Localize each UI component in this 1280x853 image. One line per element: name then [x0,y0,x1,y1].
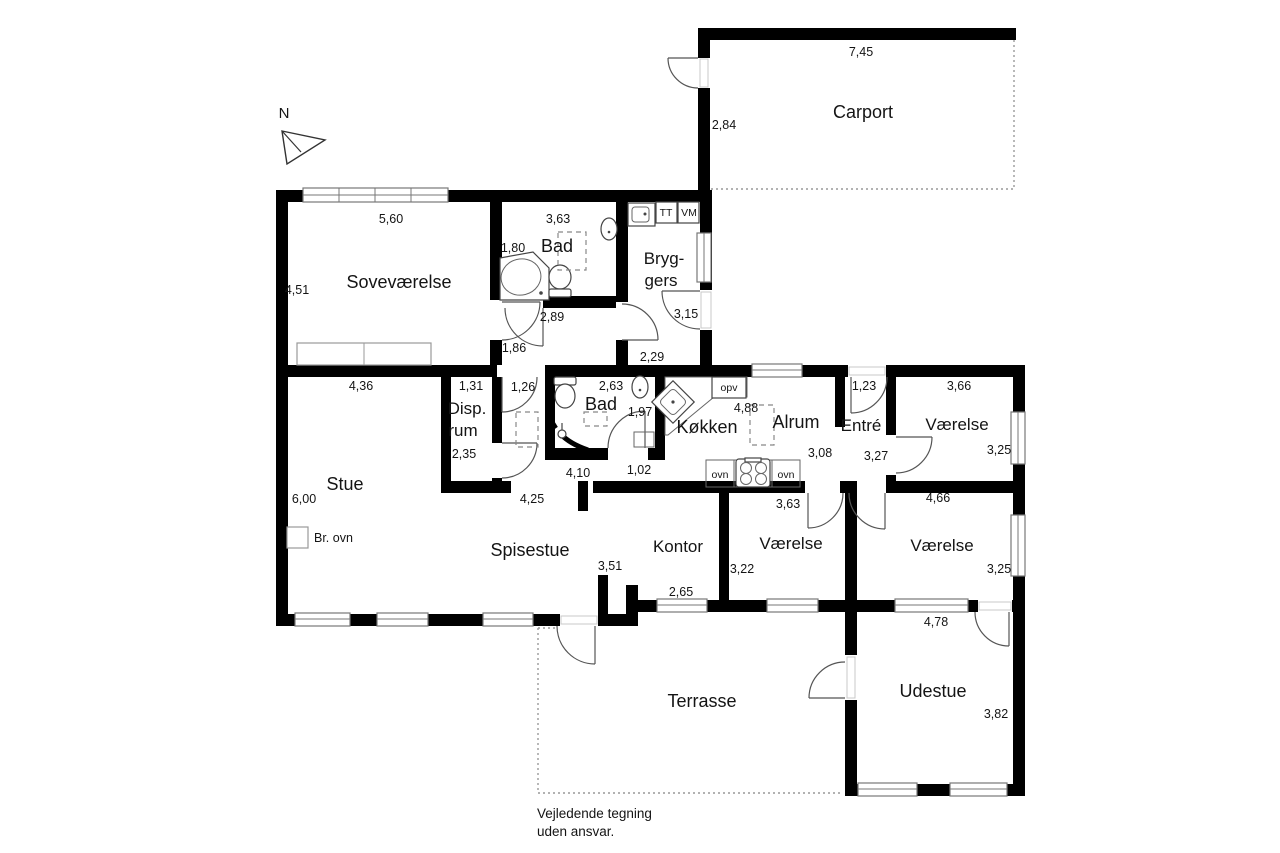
toilet-icon-bad2 [554,377,576,408]
dashed-fixture-bad2 [584,412,607,426]
door-udestue-terrasse [809,662,845,698]
disclaimer: Vejledende tegning uden ansvar. [537,806,652,839]
room-label-udestue: Udestue [899,681,966,701]
room-label-terrasse: Terrasse [667,691,736,711]
dim-passage-width: 1,02 [627,463,651,477]
dim-bryggers-width: 2,29 [640,350,664,364]
door-udestue-vaerelse [975,612,1009,646]
window-vaerelse-mid [767,599,818,612]
shower-base-bad2 [634,432,654,447]
washing-machine-icon: VM [678,202,699,223]
dim-bad1-width: 3,63 [546,212,570,226]
window-vaerelse-se [1011,515,1025,576]
dim-carport-depth: 2,84 [712,118,736,132]
dim-entre-depth: 3,27 [864,449,888,463]
dim-vaerelse-se-bottom: 4,78 [924,615,948,629]
door-disp-rum [502,443,537,478]
dim-hall-bottom-width: 4,10 [566,466,590,480]
floor-plan-page: TT VM opv [0,0,1280,853]
room-label-bryggers-1: Bryg- [644,249,685,268]
disclaimer-line-2: uden ansvar. [537,824,614,839]
dim-bad2-width: 2,63 [599,379,623,393]
wood-stove-label: Br. ovn [314,531,353,545]
room-label-disp-1: Disp. [448,399,487,418]
dim-carport-width: 7,45 [849,45,873,59]
dim-sovevaerelse-depth: 4,51 [285,283,309,297]
window-udestue-bottom-2 [950,783,1007,796]
dim-disp-depth: 2,35 [452,447,476,461]
dim-vaerelse-ne-width: 3,66 [947,379,971,393]
north-arrow-icon [282,131,325,164]
window-alrum [752,364,802,377]
dishwasher-label: opv [721,382,739,394]
room-label-kontor: Kontor [653,537,703,556]
sink-icon-bad2 [632,376,648,398]
wardrobe [297,343,431,365]
room-label-vaerelse-mid: Værelse [759,534,822,553]
dim-bad2-depth: 1,97 [628,405,652,419]
dim-alrum-depth: 3,08 [808,446,832,460]
dim-stue-depth: 6,00 [292,492,316,506]
dim-vaerelse-ne-depth: 3,25 [987,443,1011,457]
dim-disp-width: 1,31 [459,379,483,393]
dim-hall1-width: 1,86 [502,341,526,355]
oven-left-label: ovn [712,469,729,481]
window-udestue-top [895,599,968,612]
room-label-disp-2: rum [448,421,477,440]
room-label-entre: Entré [841,416,882,435]
room-label-bad2: Bad [585,394,617,414]
room-label-sovevaerelse: Soveværelse [346,272,451,292]
room-label-vaerelse-se: Værelse [910,536,973,555]
dim-koekken-width: 4,88 [734,401,758,415]
dim-spisestue-top: 4,25 [520,492,544,506]
bathtub-icon [497,252,549,300]
dim-bad1-bottom: 2,89 [540,310,564,324]
window-bryggers [697,233,711,282]
room-label-alrum: Alrum [772,412,819,432]
door-vaerelse-ne [896,437,932,473]
oven-right-label: ovn [778,469,795,481]
room-label-bad1: Bad [541,236,573,256]
dim-hall2-width: 1,26 [511,380,535,394]
door-carport-side [668,58,698,88]
dim-kontor-bottom: 2,65 [669,585,693,599]
dim-vaerelse-mid-depth: 3,22 [730,562,754,576]
dim-bryggers-depth: 3,15 [674,307,698,321]
dim-vaerelse-mid-top: 3,63 [776,497,800,511]
door-bryggers-hall [622,304,658,340]
dim-stue-width: 4,36 [349,379,373,393]
dim-bad1-depth: 1,80 [501,241,525,255]
dim-entre-width: 1,23 [852,379,876,393]
room-label-carport: Carport [833,102,893,122]
dim-udestue-depth: 3,82 [984,707,1008,721]
room-label-stue: Stue [326,474,363,494]
disclaimer-line-1: Vejledende tegning [537,806,652,821]
floor-plan-drawing: TT VM opv [0,0,1280,853]
north-arrow: N [279,105,325,164]
window-kontor [657,599,707,612]
dim-vaerelse-se-depth: 3,25 [987,562,1011,576]
room-label-bryggers-2: gers [644,271,677,290]
wood-stove-icon: Br. ovn [287,527,353,548]
dim-vaerelse-se-top: 4,66 [926,491,950,505]
dim-spisestue-right: 3,51 [598,559,622,573]
north-label: N [279,105,290,122]
dashed-cabinet-hall [516,412,538,447]
window-vaerelse-ne [1011,412,1025,464]
window-sovevaerelse [303,188,448,202]
window-spisestue-1 [295,613,350,626]
door-terrasse [557,626,595,664]
door-vaerelse-mid [808,493,843,528]
room-label-vaerelse-ne: Værelse [925,415,988,434]
tumble-dryer-label: TT [660,207,673,219]
washing-machine-label: VM [681,207,697,219]
window-udestue-bottom-1 [858,783,917,796]
hob-icon [736,458,770,487]
room-label-spisestue: Spisestue [490,540,569,560]
dim-sovevaerelse-width: 5,60 [379,212,403,226]
room-label-koekken: Køkken [676,417,737,437]
sink-icon-bad1 [601,218,617,240]
sink-icon-bryggers [628,203,655,226]
tumble-dryer-icon: TT [656,202,677,223]
window-spisestue-3 [483,613,533,626]
window-spisestue-2 [377,613,428,626]
